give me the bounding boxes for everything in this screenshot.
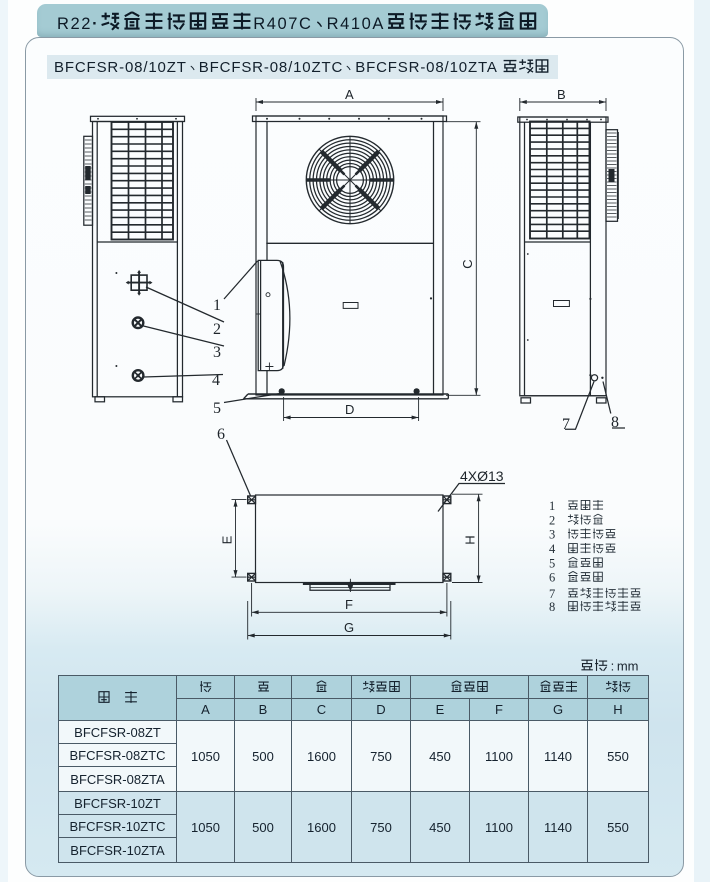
svg-text:4: 4 (549, 542, 556, 556)
svg-text:E: E (220, 535, 235, 544)
svg-text:3: 3 (549, 528, 555, 542)
svg-text:6: 6 (549, 571, 555, 585)
svg-text:4XØ13: 4XØ13 (460, 468, 504, 484)
svg-text:B: B (557, 88, 566, 102)
svg-text:2: 2 (213, 321, 221, 338)
svg-text:1: 1 (549, 499, 555, 513)
svg-text:7: 7 (562, 416, 570, 433)
svg-text:8: 8 (549, 600, 555, 614)
svg-text:1: 1 (213, 297, 221, 314)
svg-text:5: 5 (213, 400, 221, 417)
svg-text:G: G (344, 620, 354, 635)
svg-text:7: 7 (549, 587, 555, 601)
svg-text:F: F (345, 597, 353, 612)
svg-text:6: 6 (217, 426, 225, 443)
svg-text:5: 5 (549, 557, 555, 571)
svg-text:A: A (345, 88, 354, 102)
svg-text:C: C (460, 259, 475, 268)
svg-text:2: 2 (549, 513, 555, 527)
svg-text:3: 3 (213, 344, 221, 361)
svg-text:D: D (345, 402, 354, 417)
svg-text:H: H (463, 535, 478, 544)
